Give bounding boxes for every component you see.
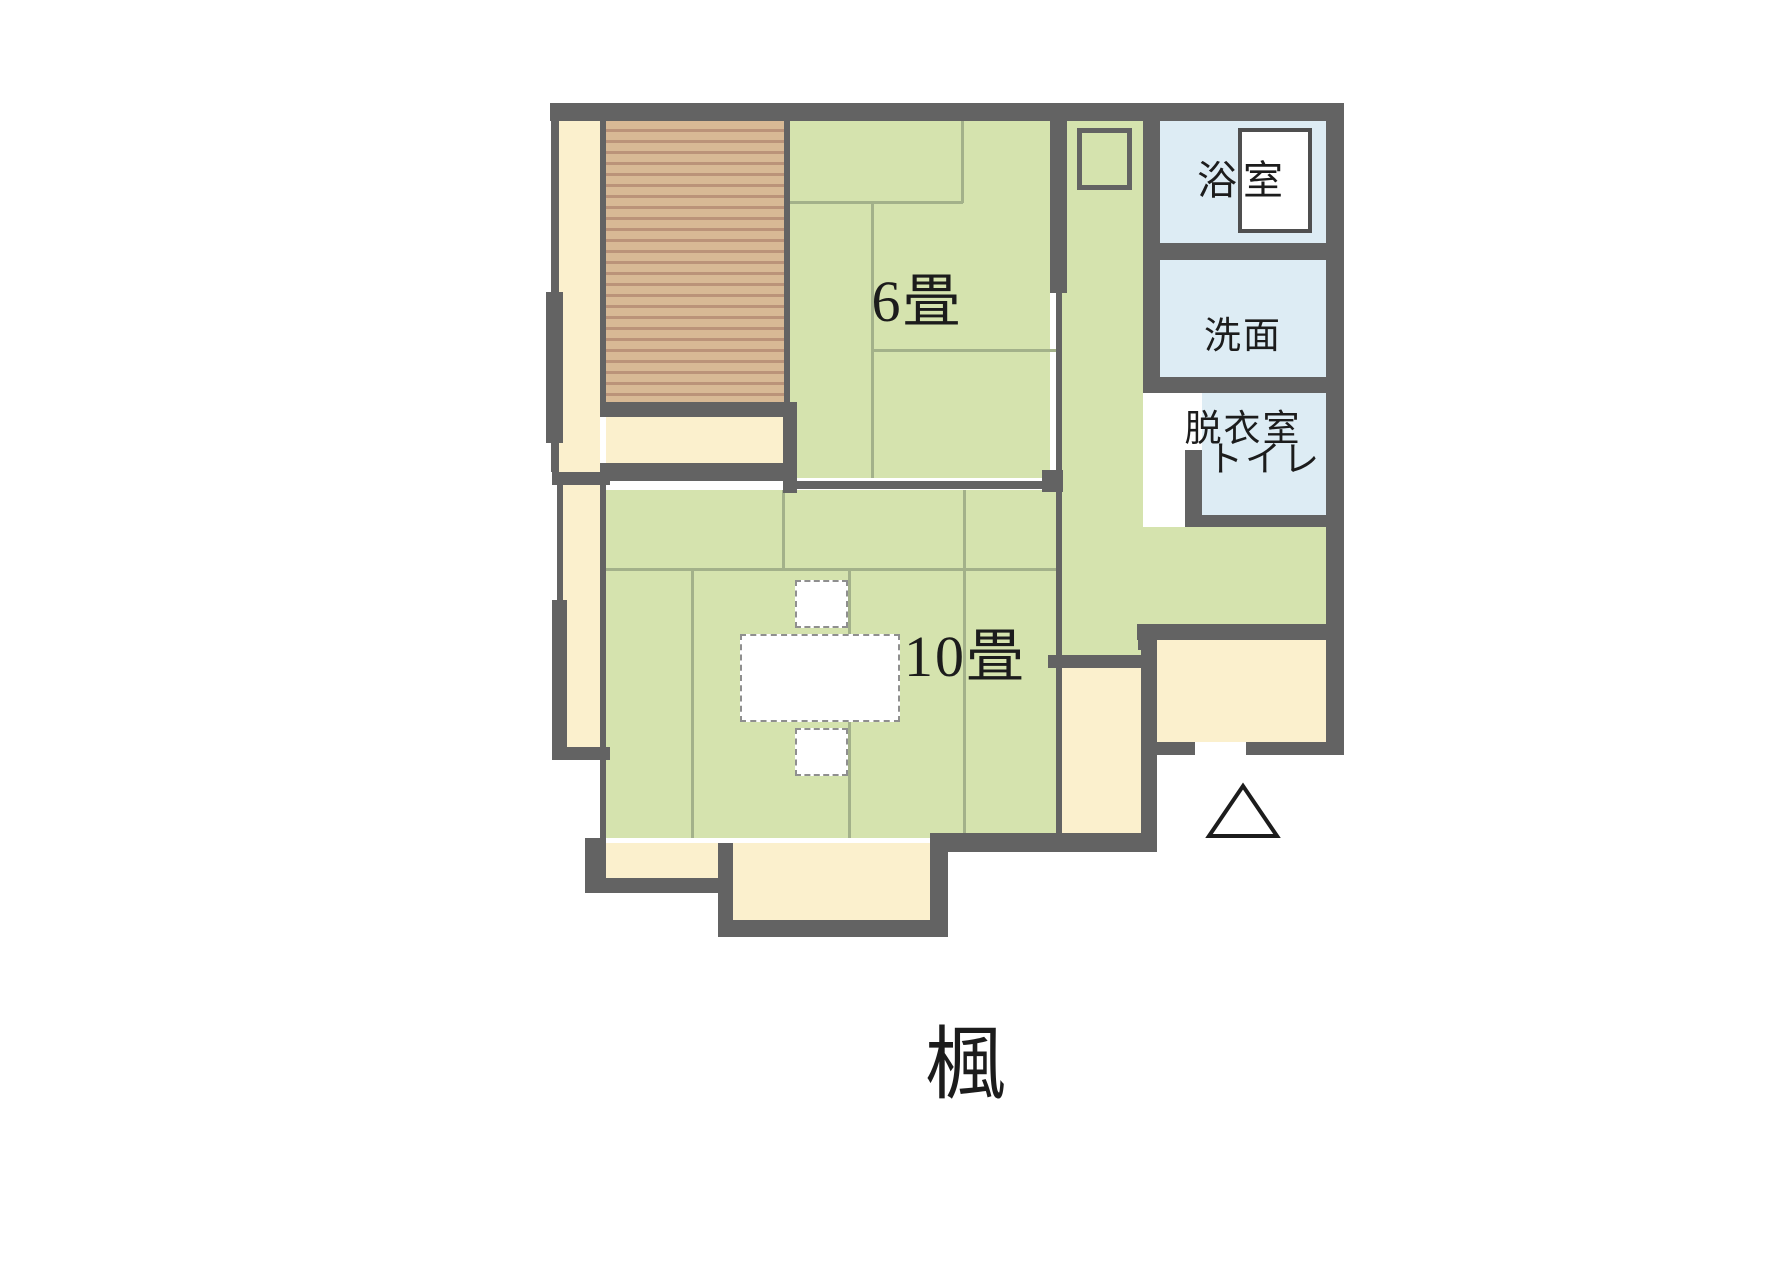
corridor [1062, 121, 1143, 657]
wood-deck [606, 121, 784, 402]
wall [552, 600, 567, 760]
wall [590, 878, 718, 893]
wall-sliding-door [600, 485, 606, 838]
wall [930, 833, 1157, 852]
bathroom-label: 浴室 [1160, 161, 1326, 201]
tatami-seam [871, 203, 874, 478]
wall [1143, 243, 1326, 260]
wall [1246, 742, 1344, 755]
wall [551, 443, 559, 472]
wall-sliding-door [1056, 293, 1062, 657]
floor-plan-canvas: 6畳 10畳 浴室 洗面 脱衣室 トイレ 楓 [0, 0, 1789, 1275]
wall [718, 843, 733, 937]
southwest-veranda [603, 843, 718, 878]
wall [1141, 640, 1157, 852]
room-10-label: 10畳 [830, 628, 1100, 686]
wall-sliding-door [1056, 657, 1062, 852]
tatami-seam [606, 568, 1062, 571]
veranda-north [559, 121, 600, 483]
washroom-label: 洗面 脱衣室 [1160, 268, 1326, 453]
floor-cushion [795, 728, 848, 776]
plan-title: 楓 [866, 1026, 1066, 1106]
deck-south-closet [606, 417, 783, 463]
wall [718, 920, 948, 937]
washroom-label-line1: 洗面 [1204, 316, 1282, 357]
wall [551, 121, 559, 292]
entrance-triangle-icon [1205, 782, 1281, 840]
wall [600, 402, 790, 417]
wall [784, 121, 790, 402]
wall [1157, 742, 1195, 755]
wall [557, 485, 563, 600]
entrance-genkan [1157, 640, 1326, 742]
room-6-label: 6畳 [784, 273, 1050, 331]
wall-sliding-door [797, 481, 1050, 489]
wall [1050, 103, 1067, 293]
wall [550, 103, 1344, 121]
wall [1326, 103, 1344, 755]
tatami-seam [873, 349, 1056, 352]
tatami-seam [961, 121, 964, 203]
wall [546, 292, 563, 443]
wall [1185, 515, 1344, 527]
wall [1137, 624, 1344, 640]
wall [585, 838, 606, 893]
wall [600, 121, 606, 417]
south-alcove [733, 843, 930, 920]
toilet-label: トイレ [1202, 441, 1326, 477]
floor-cushion [795, 580, 848, 628]
wall [600, 463, 797, 481]
tatami-seam [782, 490, 785, 570]
tatami-seam [790, 201, 963, 204]
tatami-seam [691, 570, 694, 838]
tatami-seam [963, 570, 966, 838]
water-heater-box [1077, 128, 1132, 190]
tatami-seam [963, 490, 966, 570]
